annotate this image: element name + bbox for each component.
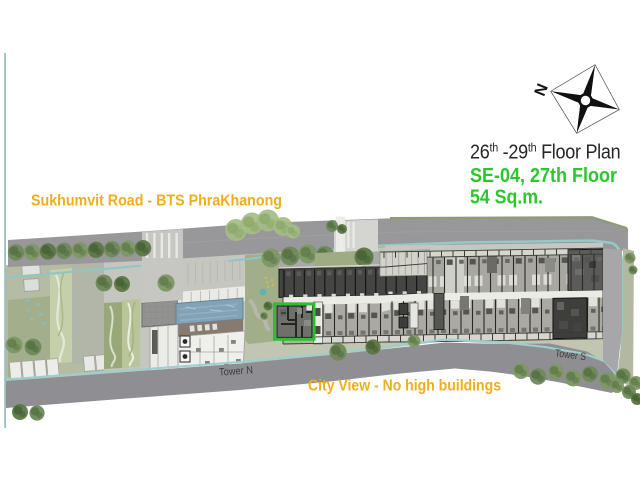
svg-text:Sukhumvit Road - BTS PhraKhano: Sukhumvit Road - BTS PhraKhanong xyxy=(31,193,282,210)
svg-text:City View - No high buildings: City View - No high buildings xyxy=(308,378,501,395)
svg-text:SE-04, 27th Floor: SE-04, 27th Floor xyxy=(470,165,617,187)
svg-text:Tower N: Tower N xyxy=(219,364,254,378)
svg-text:54 Sq.m.: 54 Sq.m. xyxy=(470,187,543,209)
